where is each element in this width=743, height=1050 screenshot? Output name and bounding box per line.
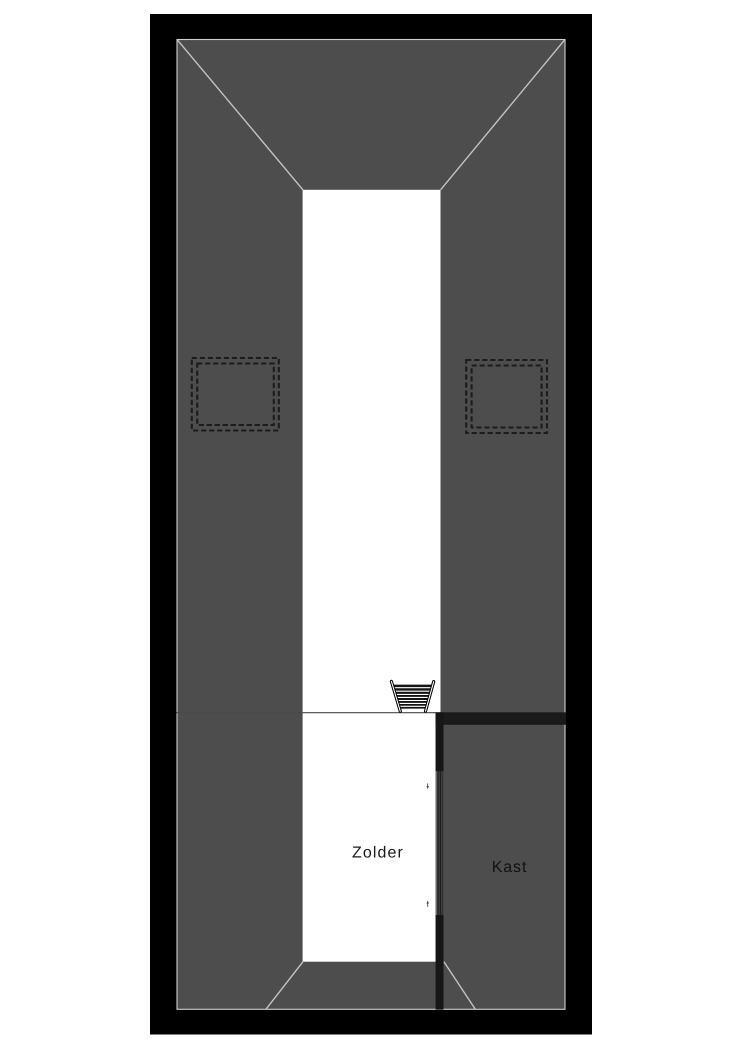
svg-text:Zolder: Zolder (352, 845, 404, 862)
svg-text:Kast: Kast (492, 859, 528, 876)
